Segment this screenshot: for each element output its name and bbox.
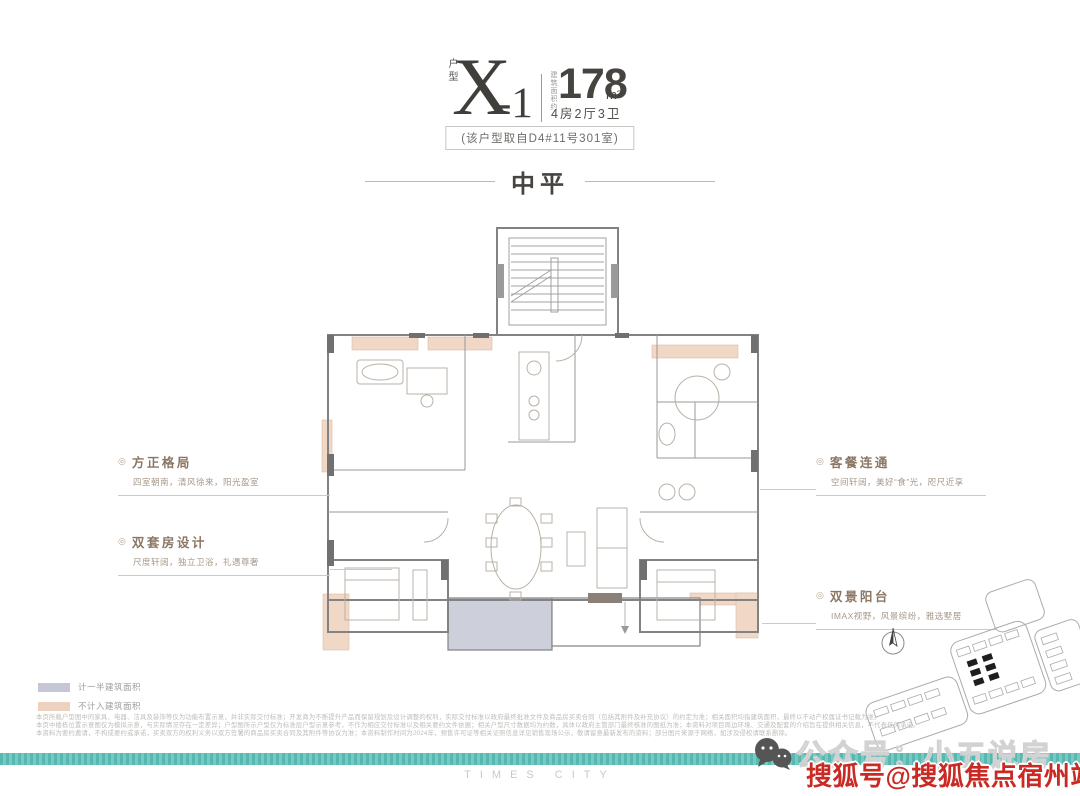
disclaimer-line: 本页中楼栋位置示意图仅为模拟示意，与实际情况存在一定差异；户型图所示户型仅为标准…	[36, 722, 1044, 730]
annotation-rule	[816, 495, 986, 496]
section-header: 中平	[0, 164, 1080, 199]
flyer-page: 户型 X -1 建筑面积约 178 m² 4房2厅3卫 (该户型取自D4#11号…	[0, 0, 1080, 796]
legend-label: 计一半建筑面积	[78, 681, 141, 693]
annotation-double-suite: ◎ 双套房设计 尺度轩阔，独立卫浴，礼遇尊奢	[118, 532, 330, 576]
header-divider	[541, 74, 542, 122]
disclaimer-line: 本页所载户型图中的家具、电器、洁具及装饰等仅为功能布置示意，并非实际交付标准；开…	[36, 714, 1044, 722]
leader-line	[330, 569, 392, 570]
site-plan-map	[856, 602, 1080, 728]
annotation-marker-icon: ◎	[118, 536, 126, 547]
legend-swatch-half-area	[38, 683, 70, 692]
annotation-title: 双套房设计	[132, 532, 207, 551]
annotation-title: 方正格局	[132, 452, 192, 471]
site-highlighted-buildings	[967, 653, 1000, 686]
annotation-title: 客餐连通	[830, 452, 890, 471]
annotation-desc: 尺度轩阔，独立卫浴，礼遇尊奢	[118, 556, 330, 568]
annotation-desc: 空间轩阔，美好“食”光，咫尺近享	[816, 476, 986, 488]
legend-item-not-counted: 不计入建筑面积	[38, 700, 141, 712]
plan-wall-blocks	[327, 333, 758, 580]
annotation-marker-icon: ◎	[816, 590, 824, 601]
annotation-desc: 四室朝南，清风徐来，阳光盈室	[118, 476, 330, 488]
plan-balcony-open	[552, 598, 700, 646]
annotation-rule	[118, 575, 330, 576]
section-line-right	[585, 181, 715, 182]
leader-line	[760, 489, 816, 490]
leader-line	[762, 623, 816, 624]
rooms-summary: 4房2厅3卫	[551, 103, 621, 122]
source-note: (该户型取自D4#11号301室)	[445, 126, 634, 150]
annotation-rule	[118, 495, 330, 496]
plan-partitions	[328, 335, 758, 512]
stairwell	[509, 238, 606, 325]
plan-tv-wall	[588, 593, 622, 603]
area-unit: m²	[606, 87, 621, 102]
section-line-left	[365, 181, 495, 182]
unit-code-suffix: -1	[497, 82, 533, 125]
floor-plan-svg	[305, 202, 775, 662]
plan-balcony-half-area	[448, 598, 552, 650]
section-title: 中平	[511, 164, 569, 199]
sohu-watermark: 搜狐号@搜狐焦点宿州站	[806, 756, 1080, 793]
legend-label: 不计入建筑面积	[78, 700, 141, 712]
annotation-marker-icon: ◎	[118, 456, 126, 467]
legend-item-half-area: 计一半建筑面积	[38, 681, 141, 693]
plan-furniture	[345, 335, 730, 628]
legend-swatch-not-counted	[38, 702, 70, 711]
annotation-marker-icon: ◎	[816, 456, 824, 467]
annotation-dining-link: ◎ 客餐连通 空间轩阔，美好“食”光，咫尺近享	[816, 452, 986, 496]
annotation-square-layout: ◎ 方正格局 四室朝南，清风徐来，阳光盈室	[118, 452, 330, 496]
wechat-icon	[752, 737, 794, 771]
